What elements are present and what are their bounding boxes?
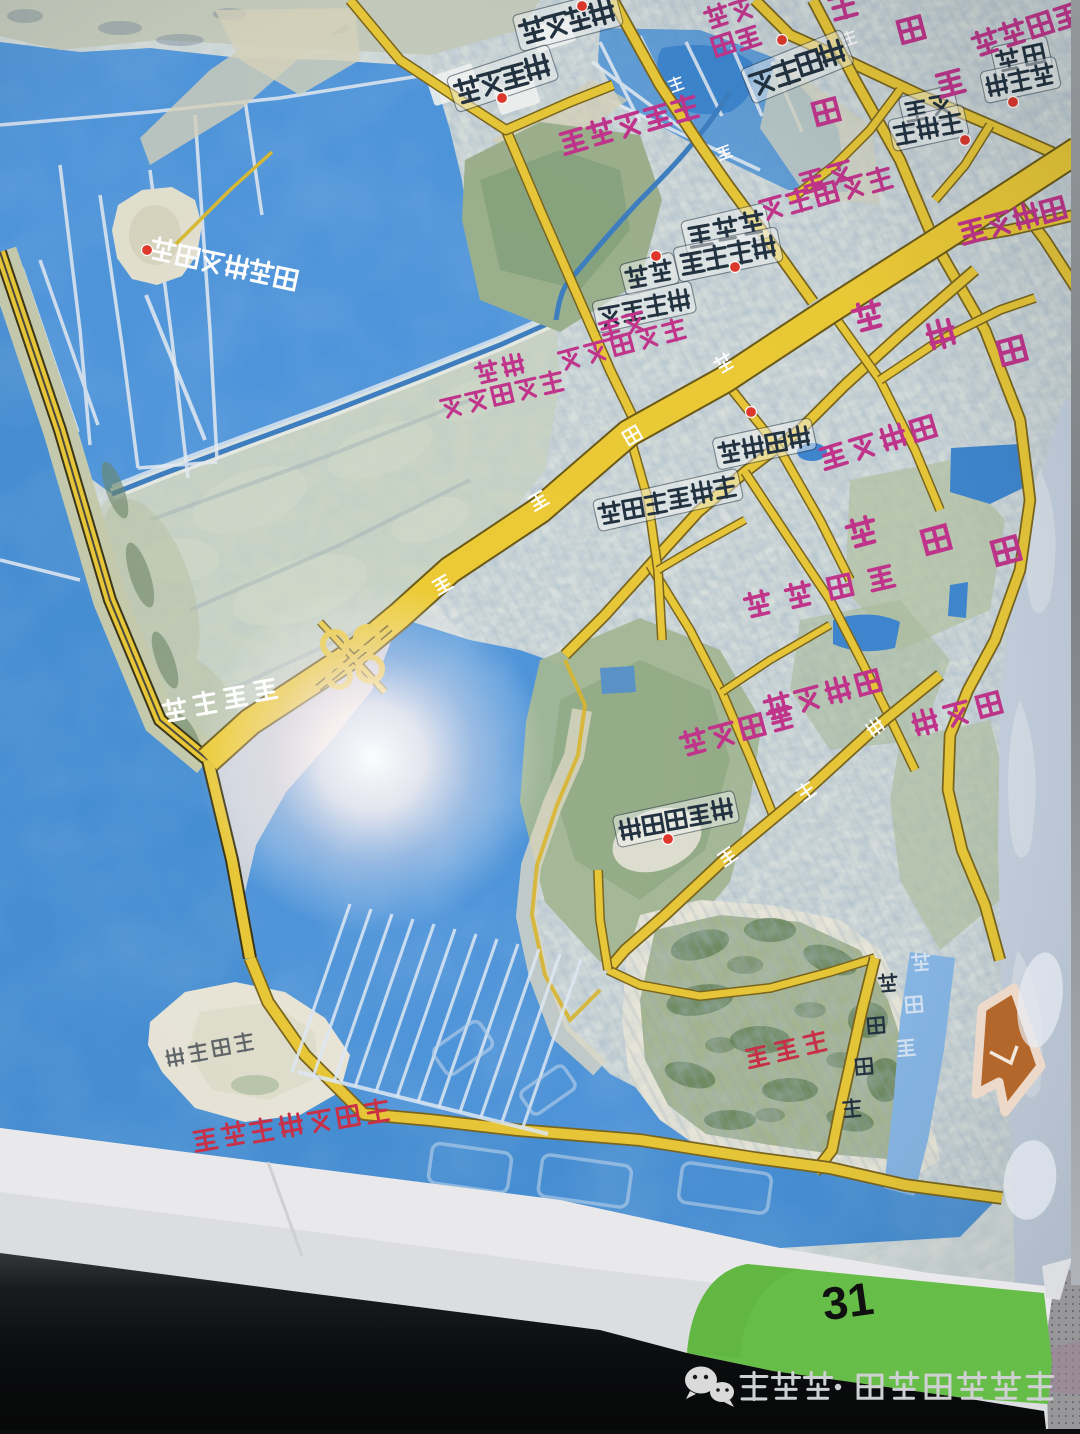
svg-text:31: 31 — [819, 1272, 877, 1331]
